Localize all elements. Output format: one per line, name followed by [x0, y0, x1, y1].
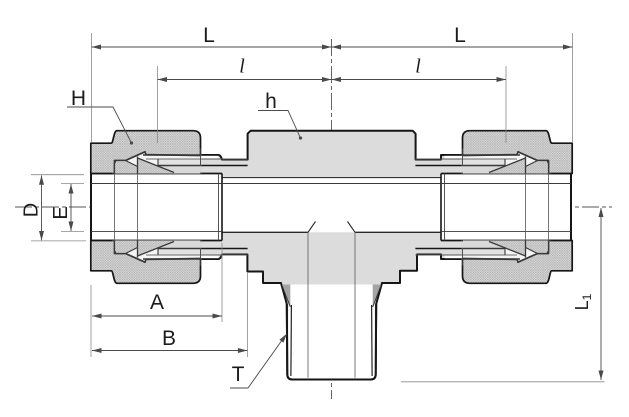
svg-text:l: l — [415, 56, 421, 78]
svg-text:L: L — [454, 24, 466, 47]
svg-text:L: L — [203, 24, 215, 47]
svg-text:D: D — [21, 203, 43, 217]
svg-text:l: l — [239, 56, 245, 78]
svg-text:A: A — [150, 291, 164, 314]
svg-text:E: E — [50, 206, 72, 219]
svg-text:T: T — [232, 363, 245, 386]
svg-text:B: B — [162, 327, 176, 350]
svg-text:h: h — [265, 90, 277, 113]
svg-text:H: H — [71, 87, 86, 110]
